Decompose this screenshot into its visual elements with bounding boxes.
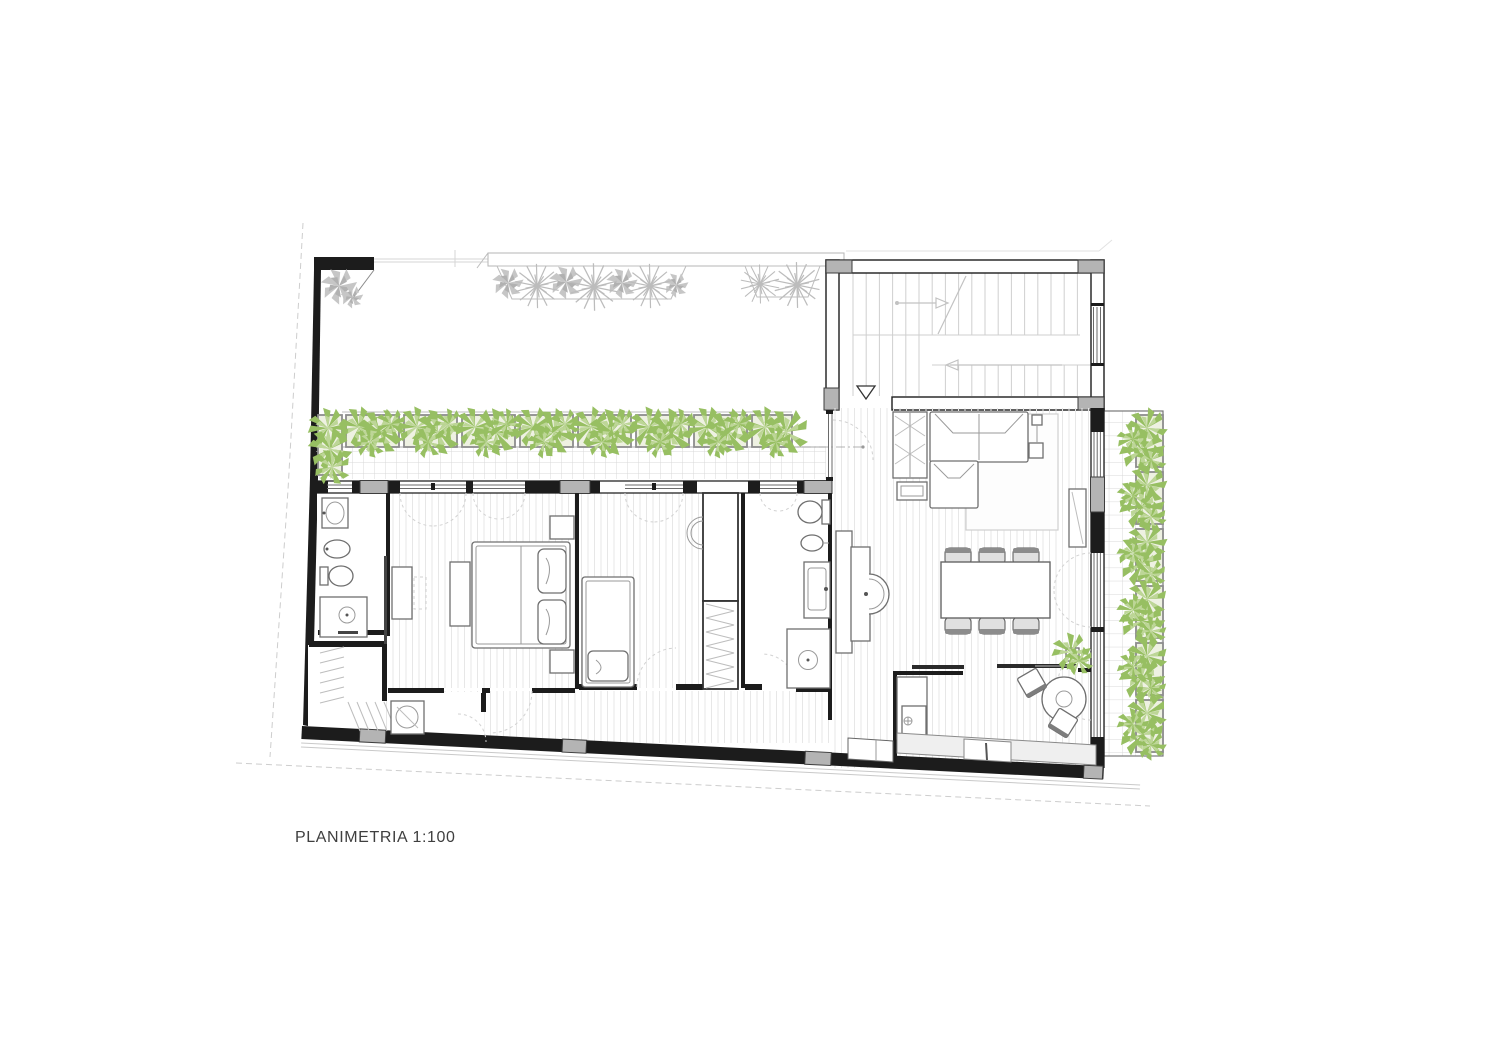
toilet: [822, 500, 830, 524]
grass-icon: [515, 264, 558, 308]
wardrobe: [703, 493, 738, 601]
sliding-door: [384, 556, 387, 644]
dresser: [392, 567, 412, 619]
column: [805, 751, 832, 765]
column: [1078, 260, 1104, 273]
column: [1083, 765, 1103, 779]
shower: [787, 629, 830, 688]
pillow: [538, 549, 566, 593]
east-wall: [1091, 408, 1105, 768]
column: [560, 481, 590, 494]
north-wall: [316, 481, 832, 494]
grass-icon: [628, 264, 671, 308]
column: [359, 729, 386, 743]
column: [804, 481, 832, 494]
scale-label: PLANIMETRIA 1:100: [295, 829, 456, 846]
pillow: [538, 600, 566, 644]
floor-lamp: [1032, 415, 1042, 425]
shrub-icon: [549, 266, 583, 300]
floor-plan-canvas: PLANIMETRIA 1:100: [0, 0, 1500, 1060]
bidet: [801, 535, 823, 551]
laundry-room: [391, 701, 424, 734]
closet-floor: [308, 645, 385, 730]
column: [824, 388, 839, 410]
sliding-door: [912, 665, 964, 669]
nightstand: [550, 650, 574, 673]
column: [1091, 477, 1105, 512]
column: [360, 481, 388, 494]
dining-table: [941, 562, 1050, 618]
floor-plan-drawing: PLANIMETRIA 1:100: [0, 0, 1500, 1060]
toilet: [320, 567, 328, 585]
shrub-icon: [492, 268, 523, 299]
nightstand: [550, 516, 574, 539]
sofa-chaise: [930, 461, 978, 508]
bench: [450, 562, 470, 626]
terrace-walkway: [316, 447, 828, 479]
dining-area: [941, 548, 1050, 634]
shrub-icon: [663, 273, 688, 298]
bench: [848, 738, 893, 762]
section-line-dot: [861, 445, 864, 448]
column: [826, 260, 852, 273]
column: [562, 739, 587, 753]
pillow: [588, 651, 628, 681]
